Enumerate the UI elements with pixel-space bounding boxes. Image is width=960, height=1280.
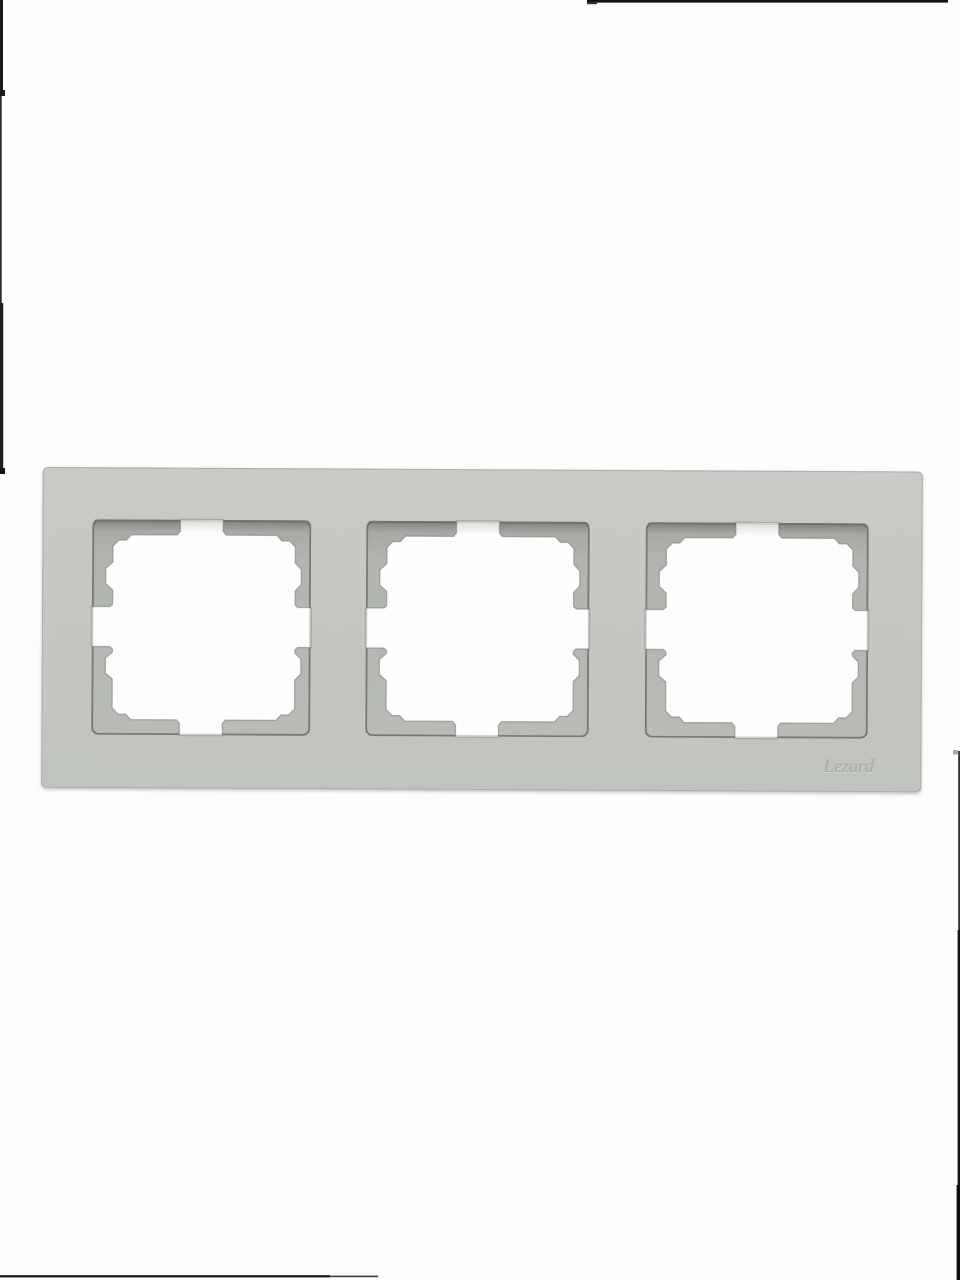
- svg-text:Lezard: Lezard: [822, 756, 875, 777]
